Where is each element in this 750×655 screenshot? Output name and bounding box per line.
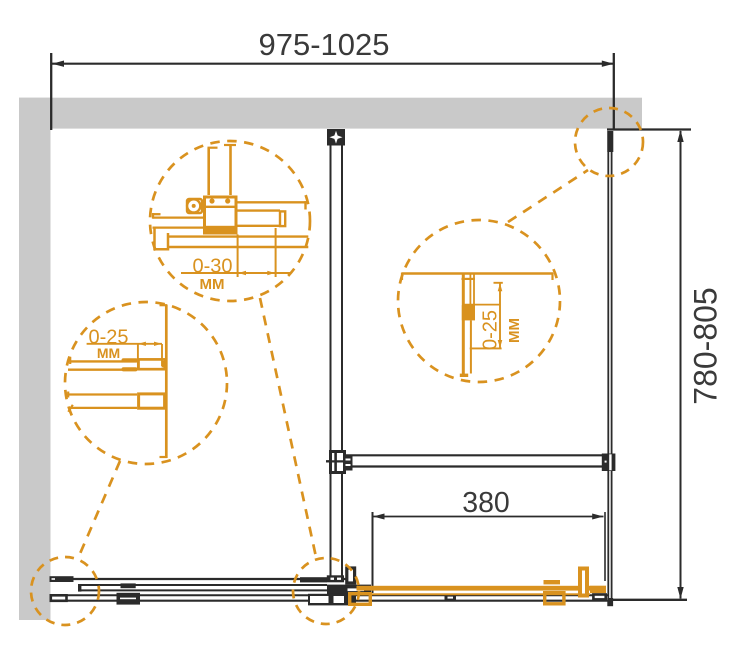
svg-text:MM: MM <box>97 345 120 361</box>
svg-text:780-805: 780-805 <box>688 287 724 404</box>
svg-text:380: 380 <box>462 487 510 519</box>
svg-text:975-1025: 975-1025 <box>258 27 389 62</box>
svg-text:0-30: 0-30 <box>192 256 232 278</box>
svg-text:0-25: 0-25 <box>480 310 502 350</box>
svg-text:MM: MM <box>200 276 225 293</box>
svg-text:MM: MM <box>506 318 523 343</box>
